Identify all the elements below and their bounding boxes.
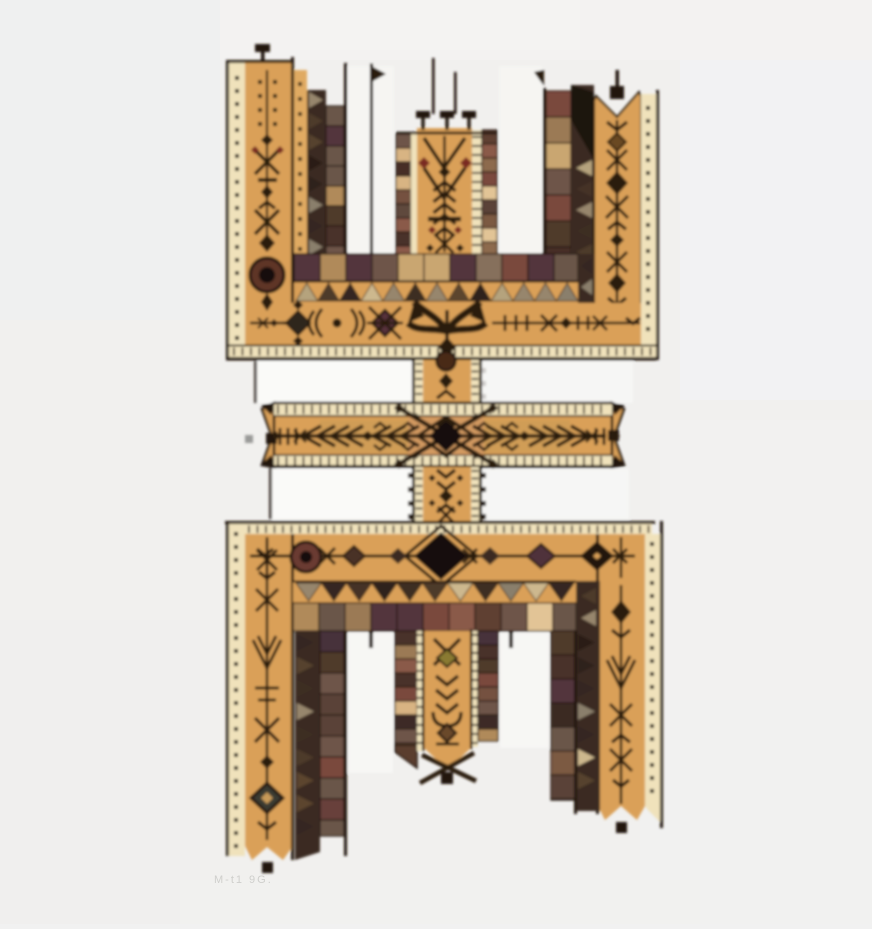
svg-text:M-t1 9G.: M-t1 9G.	[214, 874, 273, 886]
